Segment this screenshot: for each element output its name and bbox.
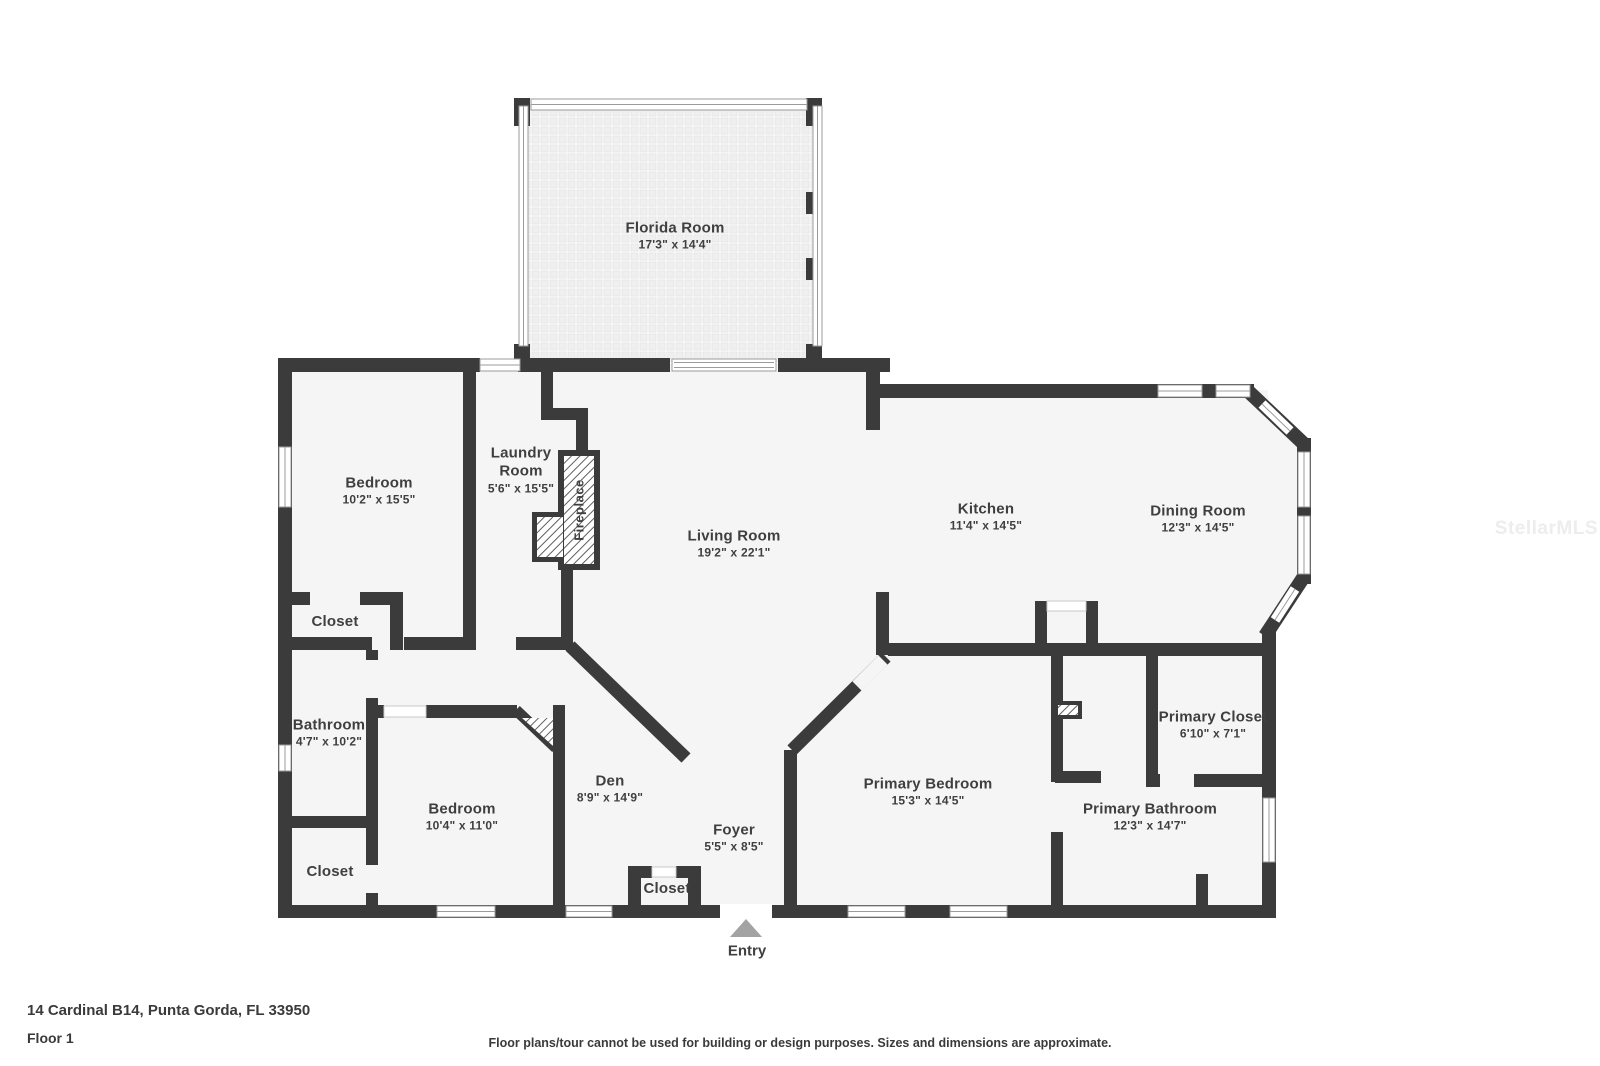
room-dims: 12'3" x 14'7" (1083, 819, 1217, 834)
room-dims: 11'4" x 14'5" (950, 519, 1022, 534)
floor-number-text: Floor 1 (27, 1030, 74, 1046)
room-label-florida-room: Florida Room 17'3" x 14'4" (625, 220, 724, 253)
room-name: Den (577, 773, 643, 791)
room-label-foyer: Foyer 5'5" x 8'5" (704, 822, 763, 855)
room-label-kitchen: Kitchen 11'4" x 14'5" (950, 501, 1022, 534)
room-name: Bedroom (426, 801, 498, 819)
room-name: Kitchen (950, 501, 1022, 519)
room-name: Closet (311, 613, 358, 631)
disclaimer-text: Floor plans/tour cannot be used for buil… (488, 1036, 1111, 1050)
room-dims: 10'2" x 15'5" (342, 493, 415, 508)
room-label-bathroom: Bathroom 4'7" x 10'2" (293, 717, 365, 750)
entry-label: Entry (728, 943, 766, 960)
entry-marker (730, 919, 762, 937)
room-dims: 19'2" x 22'1" (687, 546, 780, 561)
room-dims: 6'10" x 7'1" (1159, 727, 1268, 742)
room-name: Bedroom (342, 475, 415, 493)
room-name: Foyer (704, 822, 763, 840)
room-name: Closet (643, 880, 690, 898)
address-text: 14 Cardinal B14, Punta Gorda, FL 33950 (27, 1002, 310, 1019)
room-label-closet-1: Closet (311, 613, 358, 631)
room-name: Dining Room (1150, 503, 1246, 521)
room-dims: 5'6" x 15'5" (476, 481, 566, 496)
room-name: Primary Bathroom (1083, 801, 1217, 819)
room-dims: 10'4" x 11'0" (426, 819, 498, 834)
room-name: Living Room (687, 528, 780, 546)
room-label-primary-bedroom: Primary Bedroom 15'3" x 14'5" (864, 776, 993, 809)
room-dims: 5'5" x 8'5" (704, 840, 763, 855)
room-name: Closet (306, 863, 353, 881)
room-name: Primary Closet (1159, 709, 1268, 727)
room-label-living-room: Living Room 19'2" x 22'1" (687, 528, 780, 561)
room-label-primary-bathroom: Primary Bathroom 12'3" x 14'7" (1083, 801, 1217, 834)
room-name: Bathroom (293, 717, 365, 735)
room-dims: 17'3" x 14'4" (625, 238, 724, 253)
room-dims: 15'3" x 14'5" (864, 794, 993, 809)
floor-plan-drawing (0, 0, 1600, 1066)
room-dims: 12'3" x 14'5" (1150, 521, 1246, 536)
room-label-closet-3: Closet (643, 880, 690, 898)
room-label-laundry-room: Laundry Room 5'6" x 15'5" (476, 444, 566, 495)
stellar-mls-watermark: StellarMLS (1495, 518, 1598, 540)
room-label-bedroom-1: Bedroom 10'2" x 15'5" (342, 475, 415, 508)
room-label-primary-closet: Primary Closet 6'10" x 7'1" (1159, 709, 1268, 742)
room-label-dining-room: Dining Room 12'3" x 14'5" (1150, 503, 1246, 536)
room-name: Florida Room (625, 220, 724, 238)
hearth-hatch (537, 517, 563, 557)
room-label-closet-2: Closet (306, 863, 353, 881)
room-dims: 4'7" x 10'2" (293, 735, 365, 750)
fireplace-label: Fireplace (572, 479, 587, 541)
room-name: Laundry Room (476, 444, 566, 481)
room-label-den: Den 8'9" x 14'9" (577, 773, 643, 806)
room-dims: 8'9" x 14'9" (577, 791, 643, 806)
room-name: Primary Bedroom (864, 776, 993, 794)
floor-plan-page: Florida Room 17'3" x 14'4" Bedroom 10'2"… (0, 0, 1600, 1066)
bath-niche-hatch (1058, 705, 1078, 715)
room-label-bedroom-2: Bedroom 10'4" x 11'0" (426, 801, 498, 834)
